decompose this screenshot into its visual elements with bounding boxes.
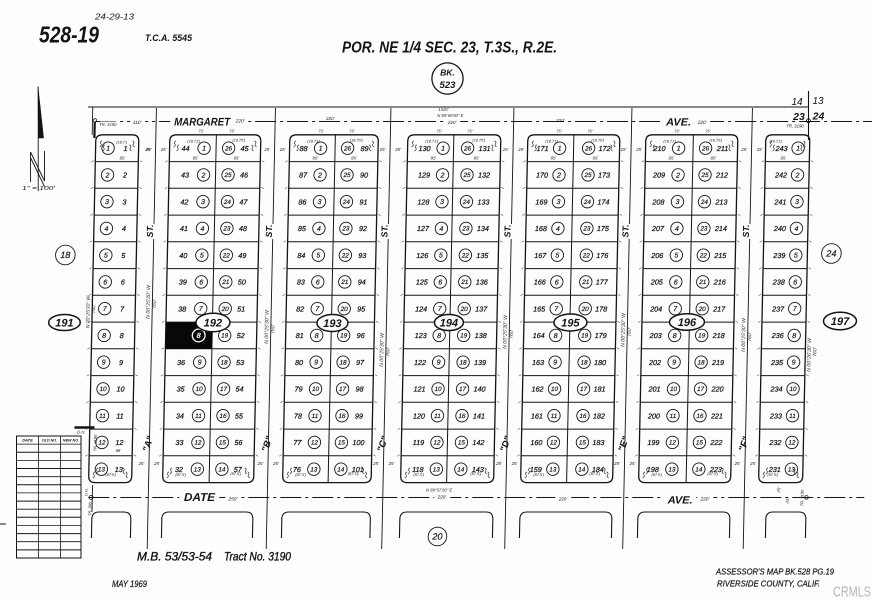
- svg-text:23: 23: [222, 226, 231, 233]
- svg-text:35: 35: [176, 385, 185, 394]
- svg-text:(87.5'): (87.5'): [230, 472, 241, 476]
- svg-text:25': 25': [613, 461, 620, 466]
- svg-text:171: 171: [537, 144, 549, 153]
- svg-text:46: 46: [240, 171, 248, 180]
- svg-text:85': 85': [234, 156, 240, 161]
- svg-text:2: 2: [317, 172, 322, 179]
- svg-text:25': 25': [138, 461, 145, 466]
- svg-text:167: 167: [534, 251, 547, 260]
- svg-text:25': 25': [388, 461, 395, 466]
- svg-text:10: 10: [789, 386, 797, 393]
- svg-text:161: 161: [531, 411, 543, 420]
- svg-text:138: 138: [475, 331, 487, 340]
- svg-text:4: 4: [675, 226, 679, 233]
- svg-text:12: 12: [669, 440, 677, 447]
- svg-text:24: 24: [462, 199, 471, 206]
- svg-text:219: 219: [711, 358, 724, 367]
- svg-text:75': 75': [436, 129, 442, 134]
- svg-text:17: 17: [697, 386, 705, 393]
- svg-text:19: 19: [460, 333, 468, 340]
- svg-text:14: 14: [218, 466, 226, 473]
- svg-text:2: 2: [122, 171, 127, 180]
- svg-text:129: 129: [418, 171, 430, 180]
- svg-text:20: 20: [698, 306, 707, 313]
- svg-text:18: 18: [221, 359, 229, 366]
- svg-text:21: 21: [581, 279, 589, 286]
- svg-text:12: 12: [115, 438, 123, 447]
- svg-text:21: 21: [221, 279, 229, 286]
- svg-text:85': 85': [781, 156, 787, 161]
- svg-text:179: 179: [595, 331, 607, 340]
- svg-text:9: 9: [198, 360, 202, 367]
- svg-text:(18.71'): (18.71'): [307, 140, 321, 144]
- svg-text:168: 168: [535, 224, 547, 233]
- svg-text:25: 25: [700, 172, 709, 179]
- svg-text:25': 25': [263, 147, 270, 152]
- svg-text:25: 25: [583, 172, 592, 179]
- svg-text:25': 25': [629, 461, 636, 466]
- svg-text:234: 234: [769, 385, 782, 394]
- svg-text:85': 85': [431, 156, 437, 161]
- svg-text:142: 142: [472, 438, 484, 447]
- svg-text:42: 42: [180, 197, 188, 206]
- svg-text:20: 20: [431, 532, 442, 542]
- svg-text:43: 43: [181, 171, 189, 180]
- svg-text:17: 17: [220, 386, 228, 393]
- svg-text:47: 47: [239, 197, 248, 206]
- svg-text:19: 19: [698, 333, 706, 340]
- svg-text:39: 39: [179, 278, 187, 287]
- svg-text:196: 196: [678, 317, 697, 329]
- svg-text:12: 12: [433, 440, 441, 447]
- svg-text:211: 211: [716, 144, 729, 153]
- svg-text:N 89°57'30" E: N 89°57'30" E: [426, 488, 452, 493]
- svg-text:3: 3: [105, 199, 109, 206]
- svg-text:11: 11: [670, 413, 677, 420]
- svg-text:22: 22: [341, 252, 350, 259]
- svg-text:19: 19: [340, 333, 348, 340]
- svg-text:44: 44: [182, 144, 190, 153]
- svg-text:83: 83: [297, 278, 305, 287]
- svg-text:N 00°25'30" W: N 00°25'30" W: [85, 294, 92, 328]
- svg-text:164: 164: [533, 331, 545, 340]
- svg-text:Tract No. 3190: Tract No. 3190: [224, 552, 292, 564]
- svg-text:25': 25': [145, 147, 152, 152]
- svg-text:20: 20: [581, 306, 590, 313]
- svg-text:183: 183: [592, 438, 604, 447]
- svg-text:85': 85': [474, 156, 480, 161]
- svg-text:86: 86: [298, 197, 306, 206]
- svg-text:181: 181: [593, 385, 605, 394]
- svg-text:175: 175: [597, 224, 610, 233]
- svg-text:MAY 1969: MAY 1969: [112, 579, 148, 590]
- svg-text:85': 85': [313, 156, 319, 161]
- svg-text:11: 11: [789, 413, 796, 420]
- svg-text:85': 85': [593, 156, 599, 161]
- svg-text:ST.: ST.: [741, 224, 751, 237]
- svg-text:760': 760': [270, 323, 276, 333]
- svg-text:79: 79: [294, 385, 302, 394]
- svg-text:15: 15: [696, 440, 704, 447]
- svg-text:8: 8: [102, 333, 106, 340]
- svg-text:195: 195: [561, 318, 580, 330]
- svg-text:1: 1: [106, 146, 110, 153]
- svg-text:17: 17: [339, 386, 347, 393]
- svg-text:25: 25: [223, 172, 232, 179]
- svg-text:ST.: ST.: [502, 224, 512, 237]
- svg-text:24: 24: [342, 199, 351, 206]
- svg-text:13: 13: [310, 466, 318, 473]
- svg-text:(87.5'): (87.5'): [533, 473, 544, 477]
- svg-text:221: 221: [710, 411, 723, 420]
- svg-text:213: 213: [714, 197, 727, 206]
- svg-text:3: 3: [201, 199, 205, 206]
- svg-text:11: 11: [116, 411, 124, 420]
- svg-text:201: 201: [647, 385, 660, 394]
- svg-text:2: 2: [794, 172, 799, 179]
- svg-text:5: 5: [104, 253, 108, 260]
- svg-text:119: 119: [413, 438, 425, 447]
- svg-text:82: 82: [296, 304, 304, 313]
- svg-text:110': 110': [133, 120, 143, 126]
- svg-text:18: 18: [460, 359, 468, 366]
- svg-text:20: 20: [340, 306, 349, 313]
- svg-text:220': 220': [699, 497, 710, 503]
- svg-text:125: 125: [416, 278, 429, 287]
- svg-text:22: 22: [582, 252, 591, 259]
- svg-text:8: 8: [792, 333, 796, 340]
- svg-text:45: 45: [241, 144, 250, 153]
- svg-text:25': 25': [734, 461, 741, 466]
- svg-text:(18.71'): (18.71'): [545, 140, 559, 144]
- svg-text:14: 14: [337, 466, 345, 473]
- svg-text:4: 4: [200, 226, 204, 233]
- svg-text:1" = 100': 1" = 100': [22, 186, 56, 192]
- svg-text:10: 10: [434, 386, 442, 393]
- svg-text:10: 10: [312, 386, 320, 393]
- svg-text:3: 3: [122, 197, 126, 206]
- svg-text:15: 15: [458, 440, 466, 447]
- svg-text:85': 85': [711, 156, 717, 161]
- svg-text:14: 14: [695, 466, 703, 473]
- svg-text:40: 40: [179, 251, 187, 260]
- svg-text:24: 24: [812, 111, 825, 123]
- svg-text:85': 85': [351, 156, 357, 161]
- svg-text:18: 18: [698, 359, 706, 366]
- svg-text:91: 91: [359, 197, 367, 206]
- svg-text:21: 21: [460, 279, 468, 286]
- svg-text:3: 3: [556, 199, 560, 206]
- svg-text:97: 97: [356, 358, 365, 367]
- svg-text:(18.70'): (18.70'): [232, 139, 246, 143]
- svg-text:220': 220': [555, 118, 565, 123]
- svg-text:13: 13: [98, 466, 106, 473]
- svg-text:14: 14: [578, 466, 586, 473]
- svg-text:24: 24: [700, 199, 709, 206]
- svg-text:(18.71'): (18.71'): [187, 140, 201, 144]
- svg-text:4: 4: [556, 226, 560, 233]
- svg-text:100: 100: [352, 438, 364, 447]
- svg-text:126: 126: [416, 251, 428, 260]
- svg-text:11: 11: [312, 413, 319, 420]
- svg-text:23: 23: [461, 226, 470, 233]
- svg-text:16: 16: [338, 413, 346, 420]
- svg-text:24: 24: [583, 199, 592, 206]
- svg-text:1: 1: [202, 146, 206, 153]
- svg-text:19: 19: [221, 333, 229, 340]
- svg-text:140: 140: [473, 385, 485, 394]
- svg-text:99: 99: [355, 411, 363, 420]
- svg-text:17: 17: [580, 386, 588, 393]
- svg-text:90: 90: [360, 171, 368, 180]
- svg-text:85: 85: [298, 224, 307, 233]
- svg-text:23: 23: [582, 226, 591, 233]
- svg-text:(87.5'): (87.5'): [470, 472, 481, 476]
- svg-text:(87.5'): (87.5'): [767, 473, 778, 477]
- svg-text:124: 124: [415, 304, 427, 313]
- svg-text:MARGARET: MARGARET: [174, 116, 231, 128]
- svg-text:26: 26: [584, 145, 593, 152]
- svg-text:16: 16: [458, 413, 466, 420]
- svg-text:133: 133: [477, 197, 489, 206]
- svg-text:174: 174: [597, 197, 609, 206]
- svg-text:5: 5: [555, 253, 559, 260]
- svg-text:760': 760': [385, 346, 391, 356]
- svg-text:ASSESSOR'S MAP BK.528 PG.19: ASSESSOR'S MAP BK.528 PG.19: [715, 567, 834, 577]
- svg-text:96: 96: [357, 331, 365, 340]
- svg-text:12: 12: [788, 440, 796, 447]
- svg-text:3: 3: [795, 199, 799, 206]
- svg-text:21: 21: [698, 279, 706, 286]
- svg-text:1: 1: [441, 146, 445, 153]
- svg-text:204: 204: [649, 304, 662, 313]
- svg-text:6: 6: [793, 279, 797, 286]
- svg-text:180: 180: [594, 358, 606, 367]
- svg-text:194: 194: [440, 318, 459, 330]
- svg-text:TR. 3190: TR. 3190: [799, 489, 804, 506]
- svg-text:523: 523: [439, 80, 456, 91]
- svg-text:D.H.: D.H.: [77, 430, 85, 435]
- svg-text:24: 24: [223, 199, 232, 206]
- svg-text:(87.5'): (87.5'): [105, 473, 116, 477]
- svg-text:200: 200: [647, 411, 660, 420]
- svg-text:141: 141: [473, 411, 485, 420]
- svg-text:11: 11: [551, 413, 558, 420]
- svg-text:25': 25': [740, 147, 747, 152]
- svg-text:208: 208: [651, 197, 664, 206]
- svg-text:15: 15: [579, 440, 587, 447]
- svg-text:(87.5'): (87.5'): [651, 473, 662, 477]
- svg-text:13: 13: [812, 96, 824, 107]
- svg-text:8: 8: [673, 333, 677, 340]
- svg-text:53: 53: [236, 358, 244, 367]
- svg-text:176: 176: [596, 251, 608, 260]
- svg-text:34: 34: [176, 411, 184, 420]
- svg-text:25': 25': [495, 461, 502, 466]
- svg-text:22: 22: [699, 252, 708, 259]
- svg-text:235: 235: [770, 358, 784, 367]
- svg-text:6: 6: [316, 279, 320, 286]
- svg-text:DATE: DATE: [184, 492, 216, 504]
- svg-text:25': 25': [160, 147, 167, 152]
- svg-text:75': 75': [229, 129, 235, 134]
- svg-text:127: 127: [417, 224, 430, 233]
- svg-text:23: 23: [341, 226, 350, 233]
- svg-text:11: 11: [434, 413, 441, 420]
- svg-text:75': 75': [349, 129, 355, 134]
- svg-text:(87.5'): (87.5'): [589, 472, 600, 476]
- svg-text:85': 85': [193, 156, 199, 161]
- svg-text:170: 170: [536, 171, 548, 180]
- svg-text:38: 38: [178, 304, 186, 313]
- svg-text:3: 3: [440, 199, 444, 206]
- svg-text:218: 218: [712, 331, 725, 340]
- svg-text:9: 9: [672, 360, 676, 367]
- svg-text:207: 207: [651, 224, 665, 233]
- svg-text:TR. 3190: TR. 3190: [92, 434, 97, 451]
- svg-text:760': 760': [747, 331, 753, 341]
- svg-text:26: 26: [343, 145, 352, 152]
- svg-text:214: 214: [714, 224, 727, 233]
- svg-text:25': 25': [394, 147, 401, 152]
- svg-text:760': 760': [152, 298, 158, 308]
- svg-text:26: 26: [224, 145, 233, 152]
- svg-text:11: 11: [99, 413, 106, 420]
- svg-text:5: 5: [200, 253, 204, 260]
- svg-text:33: 33: [175, 438, 183, 447]
- svg-text:AVE.: AVE.: [667, 495, 693, 507]
- svg-text:13: 13: [433, 466, 441, 473]
- svg-text:6: 6: [438, 279, 442, 286]
- svg-text:22: 22: [461, 252, 470, 259]
- svg-text:120: 120: [413, 411, 425, 420]
- svg-text:25': 25': [517, 147, 524, 152]
- svg-text:4: 4: [104, 226, 108, 233]
- svg-text:78: 78: [294, 411, 302, 420]
- svg-text:217: 217: [712, 304, 726, 313]
- svg-text:9: 9: [553, 360, 557, 367]
- svg-text:5: 5: [316, 253, 320, 260]
- svg-text:236: 236: [771, 331, 784, 340]
- svg-text:8: 8: [120, 331, 124, 340]
- svg-text:25': 25': [749, 461, 756, 466]
- svg-text:199: 199: [647, 438, 659, 447]
- svg-text:(87.5'): (87.5'): [295, 473, 306, 477]
- svg-text:17: 17: [459, 386, 467, 393]
- svg-text:ST.: ST.: [145, 224, 155, 237]
- svg-text:23: 23: [699, 226, 708, 233]
- svg-text:239: 239: [772, 251, 785, 260]
- svg-text:75': 75': [674, 129, 680, 134]
- svg-text:92: 92: [359, 224, 367, 233]
- svg-text:ST.: ST.: [264, 224, 274, 237]
- svg-text:26: 26: [463, 145, 472, 152]
- svg-text:41: 41: [180, 224, 188, 233]
- svg-text:13: 13: [668, 466, 676, 473]
- svg-text:T.C.A. 5545: T.C.A. 5545: [145, 33, 193, 43]
- svg-text:6: 6: [103, 279, 107, 286]
- svg-text:14: 14: [791, 97, 803, 108]
- svg-text:CRMLS: CRMLS: [833, 584, 871, 600]
- svg-text:14: 14: [457, 466, 465, 473]
- svg-text:202: 202: [648, 358, 661, 367]
- svg-text:25': 25': [511, 461, 518, 466]
- svg-text:178: 178: [595, 304, 607, 313]
- svg-text:8: 8: [554, 333, 558, 340]
- svg-text:9: 9: [314, 360, 318, 367]
- svg-text:9: 9: [792, 360, 796, 367]
- svg-text:85': 85': [120, 156, 126, 161]
- svg-text:25': 25': [756, 147, 763, 152]
- svg-text:760': 760': [812, 346, 818, 356]
- svg-text:6: 6: [121, 278, 125, 287]
- svg-text:166: 166: [534, 278, 546, 287]
- svg-text:122: 122: [414, 358, 426, 367]
- svg-text:ST.: ST.: [620, 224, 630, 237]
- svg-text:77: 77: [293, 438, 302, 447]
- svg-text:85': 85': [551, 156, 557, 161]
- svg-text:237: 237: [771, 304, 785, 313]
- svg-text:25': 25': [620, 147, 627, 152]
- svg-text:75': 75': [556, 129, 562, 134]
- svg-text:1: 1: [677, 146, 681, 153]
- svg-text:D.H.: D.H.: [85, 488, 89, 496]
- svg-text:(18.70'): (18.70'): [591, 139, 605, 143]
- svg-text:ST.: ST.: [379, 224, 389, 237]
- svg-text:131: 131: [479, 144, 491, 153]
- svg-text:12: 12: [311, 440, 319, 447]
- svg-text:203: 203: [649, 331, 662, 340]
- svg-text:216: 216: [713, 278, 726, 287]
- svg-text:18: 18: [581, 359, 589, 366]
- svg-text:163: 163: [532, 358, 544, 367]
- svg-text:10: 10: [195, 386, 203, 393]
- svg-text:(18.70'): (18.70'): [709, 139, 723, 143]
- svg-text:1: 1: [124, 144, 128, 153]
- svg-text:220': 220': [325, 116, 335, 121]
- svg-text:POR. NE 1/4 SEC. 23, T.3S., R: POR. NE 1/4 SEC. 23, T.3S., R.2E.: [342, 40, 557, 57]
- svg-text:10: 10: [116, 385, 124, 394]
- svg-text:51: 51: [237, 304, 245, 313]
- svg-text:24-29-13: 24-29-13: [94, 13, 135, 22]
- svg-text:182: 182: [593, 411, 605, 420]
- svg-text:M.B. 53/53-54: M.B. 53/53-54: [137, 552, 212, 564]
- svg-text:160: 160: [530, 438, 542, 447]
- svg-text:9: 9: [102, 360, 106, 367]
- svg-text:132: 132: [478, 171, 490, 180]
- svg-text:21: 21: [340, 279, 348, 286]
- svg-text:(18.70'): (18.70'): [472, 139, 486, 143]
- svg-text:242: 242: [774, 171, 787, 180]
- svg-text:AVE.: AVE.: [665, 117, 691, 129]
- svg-text:36: 36: [177, 358, 185, 367]
- svg-text:75': 75': [318, 129, 324, 134]
- svg-text:19: 19: [581, 333, 589, 340]
- svg-text:6: 6: [555, 279, 559, 286]
- svg-text:10: 10: [551, 386, 559, 393]
- svg-text:25': 25': [635, 147, 642, 152]
- svg-text:25: 25: [342, 172, 351, 179]
- svg-text:88': 88': [116, 448, 122, 453]
- svg-text:10: 10: [99, 386, 107, 393]
- svg-text:1320': 1320': [438, 107, 448, 112]
- svg-text:89: 89: [361, 144, 369, 153]
- svg-text:139: 139: [474, 358, 486, 367]
- svg-text:(18.7'): (18.7'): [116, 141, 127, 145]
- svg-text:75': 75': [467, 129, 473, 134]
- svg-text:10: 10: [670, 386, 678, 393]
- svg-text:1: 1: [558, 146, 562, 153]
